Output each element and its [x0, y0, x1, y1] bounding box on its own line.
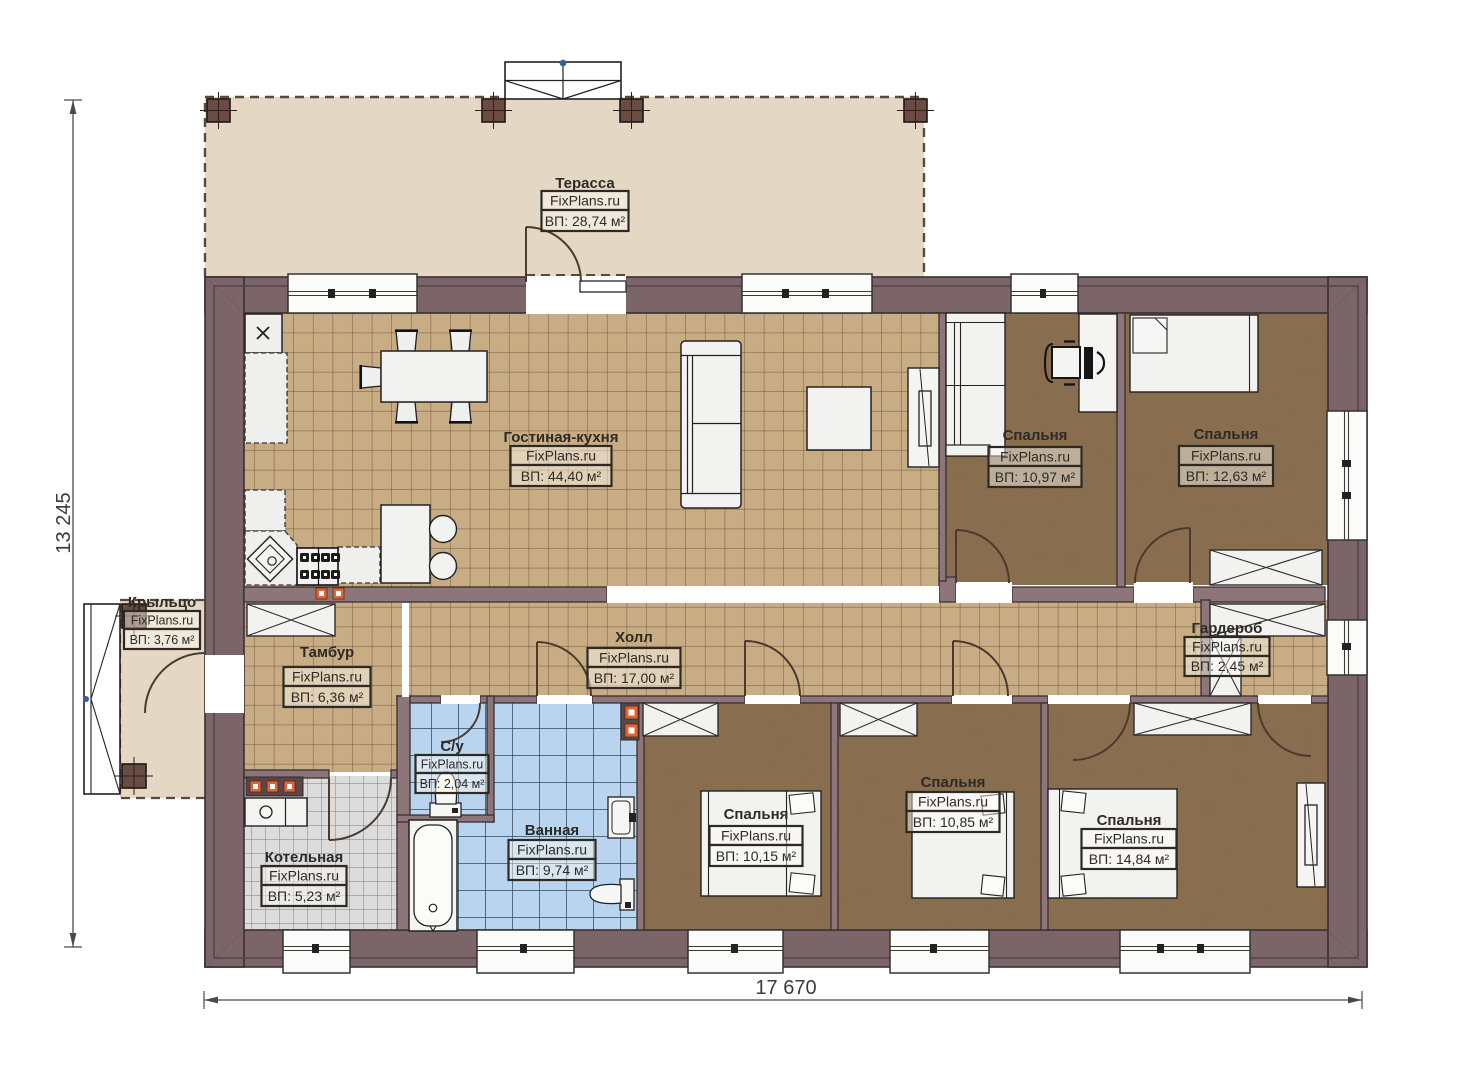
svg-text:ВП: 10,85 м²: ВП: 10,85 м²: [913, 814, 994, 830]
svg-text:Крыльцо: Крыльцо: [128, 594, 196, 611]
svg-text:FixPlans.ru: FixPlans.ru: [526, 448, 596, 464]
svg-text:Спальня: Спальня: [921, 774, 986, 791]
svg-text:FixPlans.ru: FixPlans.ru: [721, 828, 791, 844]
svg-text:FixPlans.ru: FixPlans.ru: [1000, 449, 1070, 465]
svg-text:ВП: 14,84 м²: ВП: 14,84 м²: [1089, 851, 1170, 867]
svg-text:ВП: 28,74 м²: ВП: 28,74 м²: [545, 213, 626, 229]
svg-text:Ванная: Ванная: [525, 822, 579, 839]
svg-text:С/у: С/у: [440, 738, 464, 755]
svg-text:FixPlans.ru: FixPlans.ru: [1094, 831, 1164, 847]
svg-text:ВП: 10,97 м²: ВП: 10,97 м²: [995, 469, 1076, 485]
svg-text:FixPlans.ru: FixPlans.ru: [292, 669, 362, 685]
svg-text:FixPlans.ru: FixPlans.ru: [269, 868, 339, 884]
svg-text:ВП: 12,63 м²: ВП: 12,63 м²: [1186, 468, 1267, 484]
svg-text:ВП: 5,23 м²: ВП: 5,23 м²: [268, 888, 341, 904]
svg-text:FixPlans.ru: FixPlans.ru: [1191, 448, 1261, 464]
svg-text:Спальня: Спальня: [1097, 812, 1162, 829]
svg-text:FixPlans.ru: FixPlans.ru: [131, 614, 194, 628]
svg-text:17 670: 17 670: [755, 977, 816, 999]
svg-text:ВП: 44,40 м²: ВП: 44,40 м²: [521, 468, 602, 484]
svg-text:ВП: 10,15 м²: ВП: 10,15 м²: [716, 848, 797, 864]
svg-text:ВП: 2,04 м²: ВП: 2,04 м²: [420, 777, 485, 791]
svg-text:Спальня: Спальня: [724, 806, 789, 823]
svg-text:Спальня: Спальня: [1003, 427, 1068, 444]
svg-text:Холл: Холл: [615, 629, 653, 646]
svg-text:FixPlans.ru: FixPlans.ru: [517, 842, 587, 858]
svg-text:ВП: 9,74 м²: ВП: 9,74 м²: [516, 862, 589, 878]
svg-text:Терасса: Терасса: [555, 175, 615, 192]
svg-text:FixPlans.ru: FixPlans.ru: [918, 794, 988, 810]
svg-text:FixPlans.ru: FixPlans.ru: [1192, 639, 1262, 655]
svg-text:Спальня: Спальня: [1194, 426, 1259, 443]
svg-text:ВП: 3,76 м²: ВП: 3,76 м²: [130, 633, 195, 647]
svg-text:Гостиная-кухня: Гостиная-кухня: [504, 429, 619, 446]
svg-text:ВП: 6,36 м²: ВП: 6,36 м²: [291, 689, 364, 705]
svg-text:FixPlans.ru: FixPlans.ru: [421, 758, 484, 772]
svg-text:FixPlans.ru: FixPlans.ru: [599, 650, 669, 666]
svg-text:ВП: 2,45 м²: ВП: 2,45 м²: [1191, 658, 1264, 674]
svg-text:ВП: 17,00 м²: ВП: 17,00 м²: [594, 670, 675, 686]
svg-text:13 245: 13 245: [53, 492, 75, 553]
svg-text:Гардероб: Гардероб: [1192, 620, 1263, 637]
svg-text:Котельная: Котельная: [265, 849, 344, 866]
svg-text:Тамбур: Тамбур: [300, 644, 354, 661]
svg-text:FixPlans.ru: FixPlans.ru: [550, 193, 620, 209]
